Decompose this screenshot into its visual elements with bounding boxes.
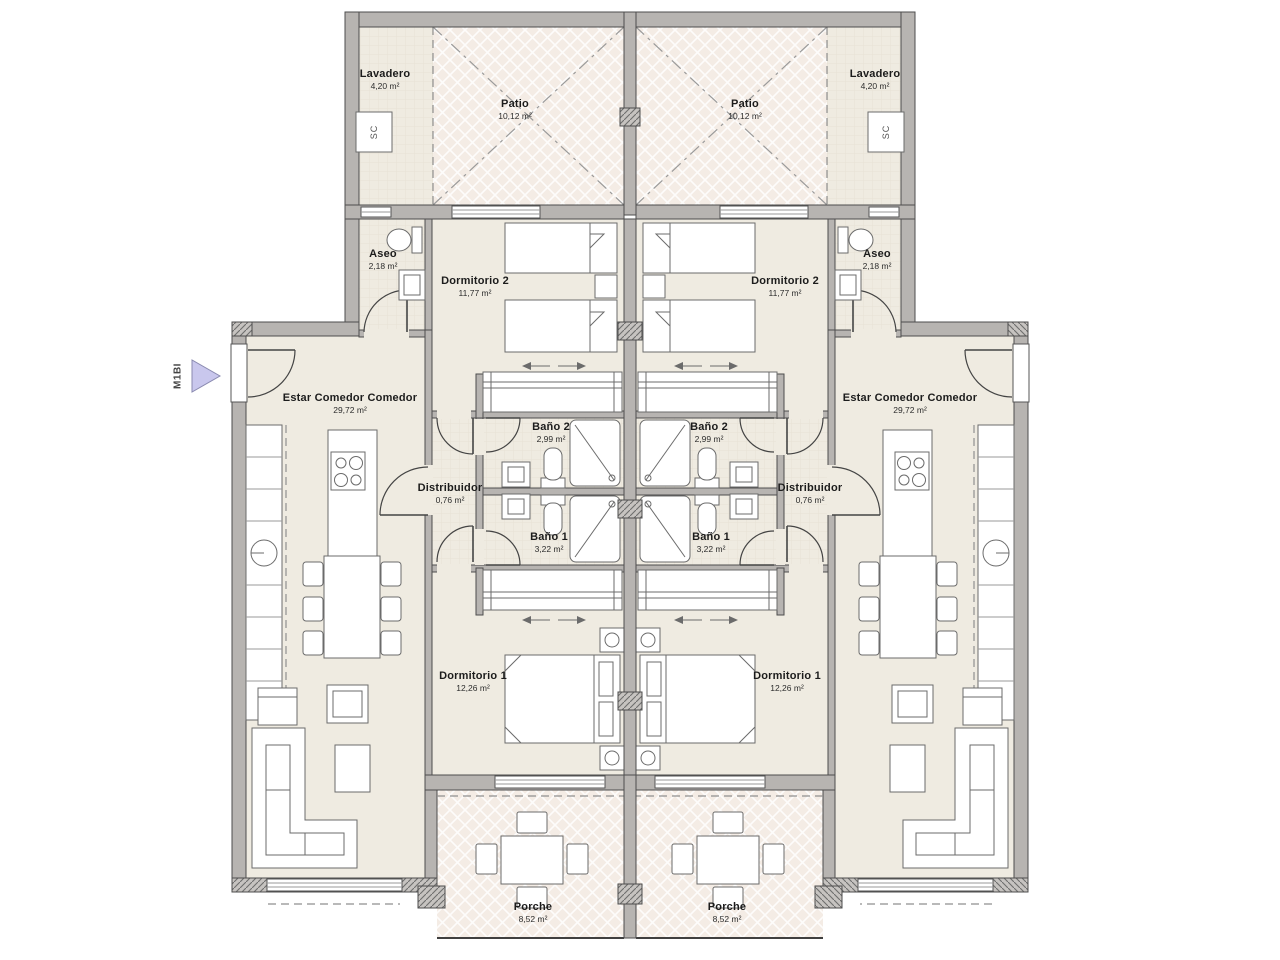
room-label-distribuidor-right: Distribuidor 0,76 m² — [778, 482, 843, 505]
room-area: 2,18 m² — [369, 261, 398, 271]
room-area: 0,76 m² — [778, 495, 843, 505]
room-name: Patio — [498, 98, 532, 110]
room-label-porche-right: Porche 8,52 m² — [708, 901, 747, 924]
room-area: 11,77 m² — [441, 288, 509, 298]
floorplan-svg — [0, 0, 1280, 960]
room-name: Distribuidor — [778, 482, 843, 494]
room-area: 4,20 m² — [850, 81, 901, 91]
room-name: Aseo — [369, 248, 398, 260]
room-label-distribuidor-left: Distribuidor 0,76 m² — [418, 482, 483, 505]
room-label-bano2-left: Baño 2 2,99 m² — [532, 421, 570, 444]
room-area: 3,22 m² — [692, 544, 730, 554]
washer-label-left: SC — [369, 125, 379, 140]
room-label-patio-right: Patio 10,12 m² — [728, 98, 762, 121]
room-label-bano1-left: Baño 1 3,22 m² — [530, 531, 568, 554]
room-name: Baño 2 — [532, 421, 570, 433]
room-name: Dormitorio 2 — [441, 275, 509, 287]
room-area: 2,99 m² — [532, 434, 570, 444]
room-name: Baño 2 — [690, 421, 728, 433]
room-area: 10,12 m² — [498, 111, 532, 121]
room-label-bano1-right: Baño 1 3,22 m² — [692, 531, 730, 554]
entrance-marker-label: M1BI — [173, 363, 184, 389]
room-area: 12,26 m² — [439, 683, 507, 693]
room-area: 2,18 m² — [863, 261, 892, 271]
room-name: Lavadero — [360, 68, 411, 80]
room-area: 12,26 m² — [753, 683, 821, 693]
room-label-aseo-left: Aseo 2,18 m² — [369, 248, 398, 271]
room-name: Baño 1 — [530, 531, 568, 543]
unit-left — [231, 12, 624, 938]
room-area: 3,22 m² — [530, 544, 568, 554]
room-area: 8,52 m² — [708, 914, 747, 924]
washer-label-right: SC — [881, 125, 891, 140]
room-name: Patio — [728, 98, 762, 110]
room-label-porche-left: Porche 8,52 m² — [514, 901, 553, 924]
room-label-aseo-right: Aseo 2,18 m² — [863, 248, 892, 271]
room-name: Aseo — [863, 248, 892, 260]
room-label-dormitorio2-right: Dormitorio 2 11,77 m² — [751, 275, 819, 298]
room-name: Porche — [514, 901, 553, 913]
room-name: Dormitorio 1 — [753, 670, 821, 682]
room-name: Dormitorio 2 — [751, 275, 819, 287]
room-area: 11,77 m² — [751, 288, 819, 298]
room-area: 2,99 m² — [690, 434, 728, 444]
room-area: 4,20 m² — [360, 81, 411, 91]
room-label-lavadero-left: Lavadero 4,20 m² — [360, 68, 411, 91]
room-area: 29,72 m² — [843, 405, 977, 415]
room-area: 29,72 m² — [283, 405, 417, 415]
room-label-bano2-right: Baño 2 2,99 m² — [690, 421, 728, 444]
room-label-dormitorio2-left: Dormitorio 2 11,77 m² — [441, 275, 509, 298]
room-name: Lavadero — [850, 68, 901, 80]
unit-right — [636, 12, 1029, 938]
room-label-lavadero-right: Lavadero 4,20 m² — [850, 68, 901, 91]
room-name: Baño 1 — [692, 531, 730, 543]
entrance-marker-icon — [192, 360, 220, 392]
room-area: 8,52 m² — [514, 914, 553, 924]
floor-plan: Lavadero 4,20 m² Lavadero 4,20 m² Patio … — [0, 0, 1280, 960]
room-label-estar-right: Estar Comedor Comedor 29,72 m² — [843, 392, 977, 415]
room-name: Estar Comedor Comedor — [843, 392, 977, 404]
room-label-patio-left: Patio 10,12 m² — [498, 98, 532, 121]
room-area: 10,12 m² — [728, 111, 762, 121]
room-name: Estar Comedor Comedor — [283, 392, 417, 404]
room-name: Porche — [708, 901, 747, 913]
room-label-estar-left: Estar Comedor Comedor 29,72 m² — [283, 392, 417, 415]
room-label-dormitorio1-right: Dormitorio 1 12,26 m² — [753, 670, 821, 693]
room-name: Dormitorio 1 — [439, 670, 507, 682]
room-name: Distribuidor — [418, 482, 483, 494]
room-area: 0,76 m² — [418, 495, 483, 505]
room-label-dormitorio1-left: Dormitorio 1 12,26 m² — [439, 670, 507, 693]
